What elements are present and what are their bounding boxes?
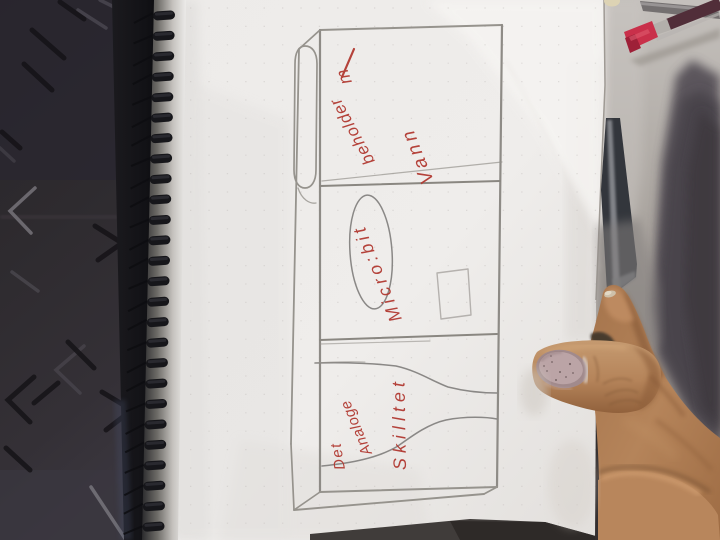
svg-text:Skilltet: Skilltet	[388, 377, 410, 470]
